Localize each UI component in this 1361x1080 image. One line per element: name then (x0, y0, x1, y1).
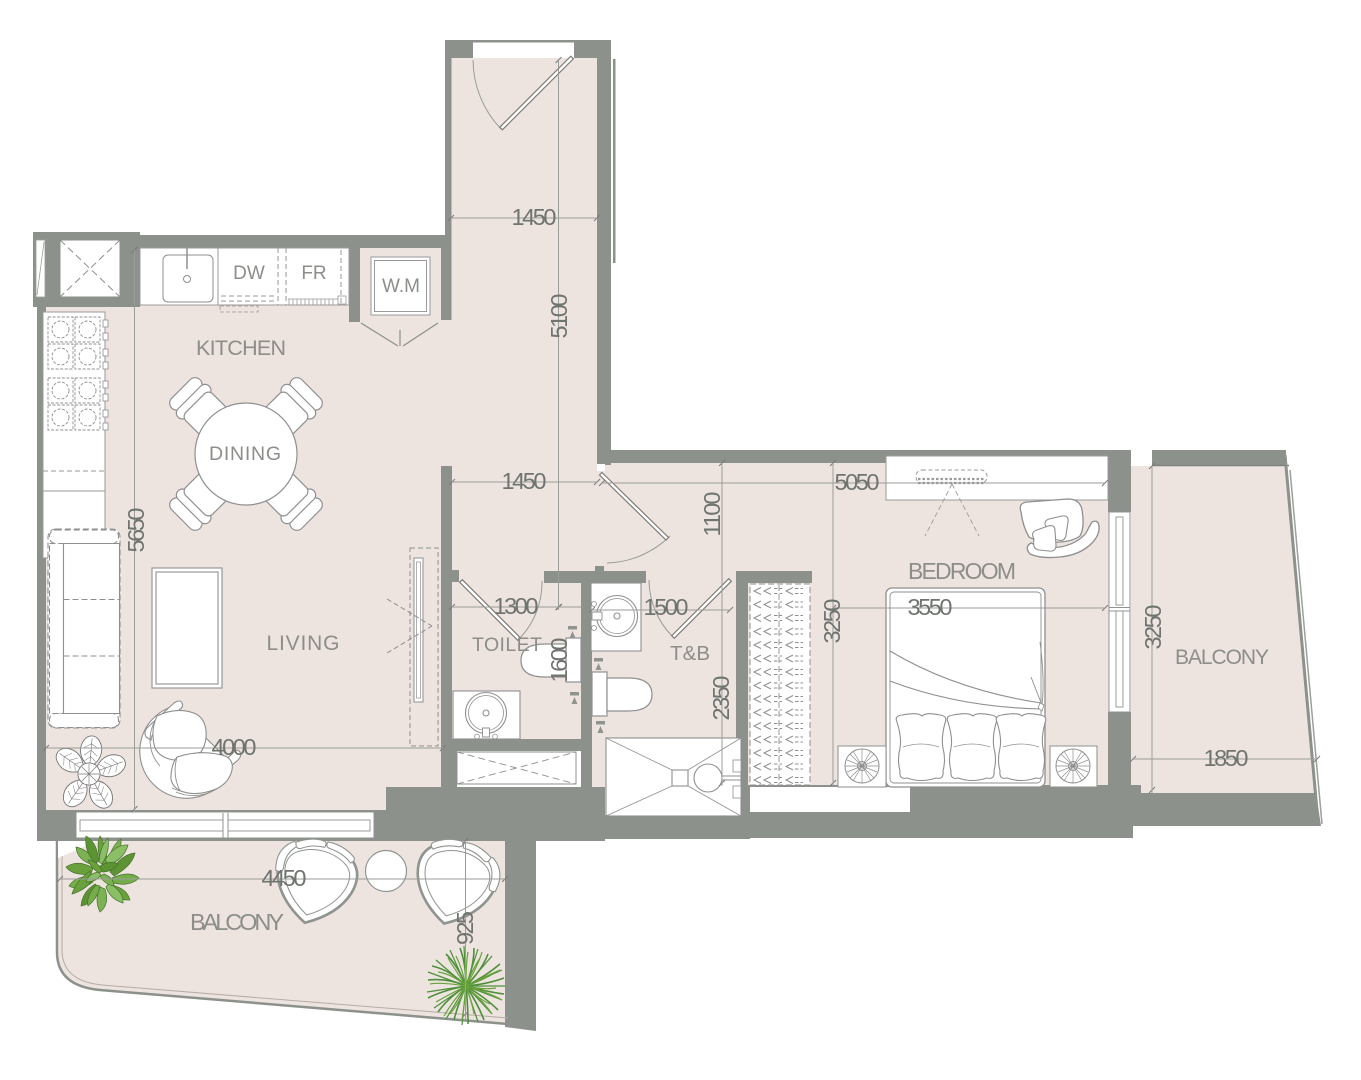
svg-text:1850: 1850 (1204, 745, 1249, 771)
svg-text:T&B: T&B (670, 642, 710, 665)
svg-text:BALCONY: BALCONY (1175, 646, 1269, 669)
svg-text:FR: FR (301, 263, 326, 284)
svg-text:1500: 1500 (644, 594, 689, 620)
svg-text:DINING: DINING (209, 443, 281, 465)
svg-text:5100: 5100 (546, 294, 572, 339)
svg-text:1450: 1450 (512, 204, 557, 230)
svg-text:LIVING: LIVING (267, 632, 340, 655)
svg-text:2350: 2350 (708, 676, 734, 721)
svg-text:5650: 5650 (123, 508, 149, 553)
svg-text:3250: 3250 (1140, 605, 1166, 650)
svg-text:1600: 1600 (546, 638, 572, 683)
svg-text:BALCONY: BALCONY (190, 909, 284, 935)
svg-text:925: 925 (452, 911, 478, 945)
svg-text:1100: 1100 (699, 492, 725, 537)
svg-text:W.M: W.M (382, 276, 420, 297)
svg-text:1300: 1300 (494, 593, 539, 619)
svg-text:5050: 5050 (835, 469, 880, 495)
svg-text:BEDROOM: BEDROOM (908, 558, 1016, 584)
svg-text:3550: 3550 (908, 594, 953, 620)
svg-text:DW: DW (233, 263, 265, 284)
svg-text:KITCHEN: KITCHEN (196, 336, 286, 360)
svg-text:TOILET: TOILET (472, 634, 542, 656)
svg-text:4450: 4450 (262, 865, 307, 891)
svg-text:4000: 4000 (212, 734, 257, 760)
svg-text:3250: 3250 (819, 599, 845, 644)
svg-text:1450: 1450 (502, 468, 547, 494)
